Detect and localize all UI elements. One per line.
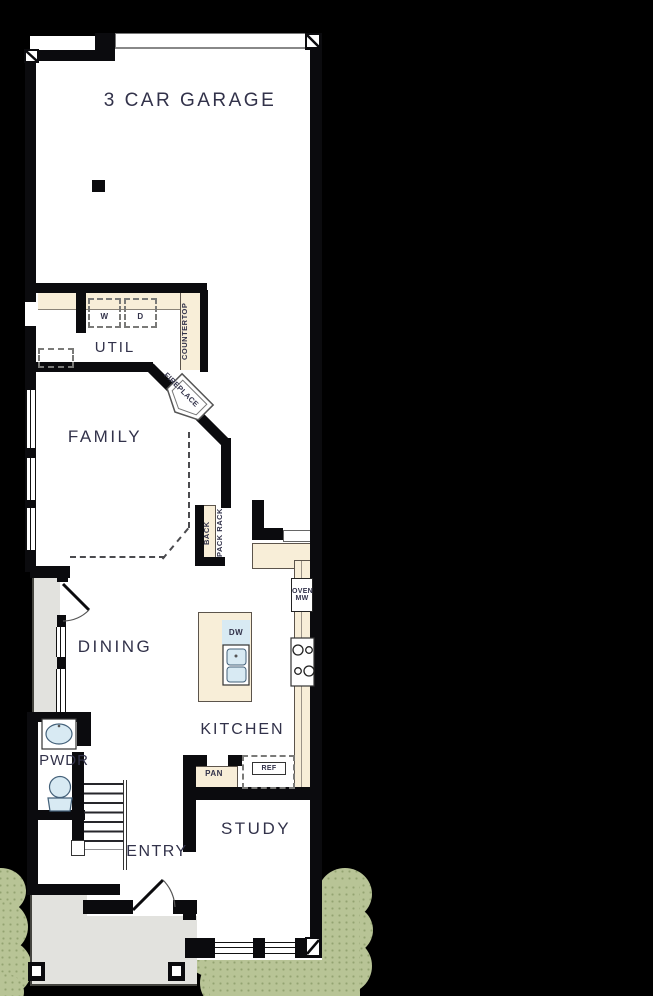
washer-label: W <box>88 313 121 322</box>
room-label-dining: DINING <box>62 638 168 657</box>
room-label-kitchen: KITCHEN <box>190 721 295 739</box>
room-label-pwdr: PWDR <box>34 753 94 770</box>
fixture-overlay <box>0 0 653 996</box>
dining-door-icon <box>63 584 89 621</box>
room-label-family: FAMILY <box>52 428 158 447</box>
countertop-label: COUNTERTOP <box>181 294 200 368</box>
room-label-util: UTIL <box>80 340 150 357</box>
room-label-entry: ENTRY <box>122 843 192 861</box>
cooktop-icon <box>291 638 314 686</box>
floor-plan: OVEN MW REF DW <box>0 0 653 996</box>
corner-mark <box>25 34 320 956</box>
entry-door-icon <box>133 880 175 910</box>
room-label-garage: 3 CAR GARAGE <box>85 91 295 112</box>
pantry-label: PAN <box>190 770 238 779</box>
toilet-icon <box>48 777 72 812</box>
kitchen-sink-icon <box>223 645 249 685</box>
backpack-rack-label-col2: PACK RACK <box>216 500 228 566</box>
powder-sink-icon <box>42 719 76 749</box>
dryer-label: D <box>124 313 157 322</box>
room-label-study: STUDY <box>208 820 304 839</box>
